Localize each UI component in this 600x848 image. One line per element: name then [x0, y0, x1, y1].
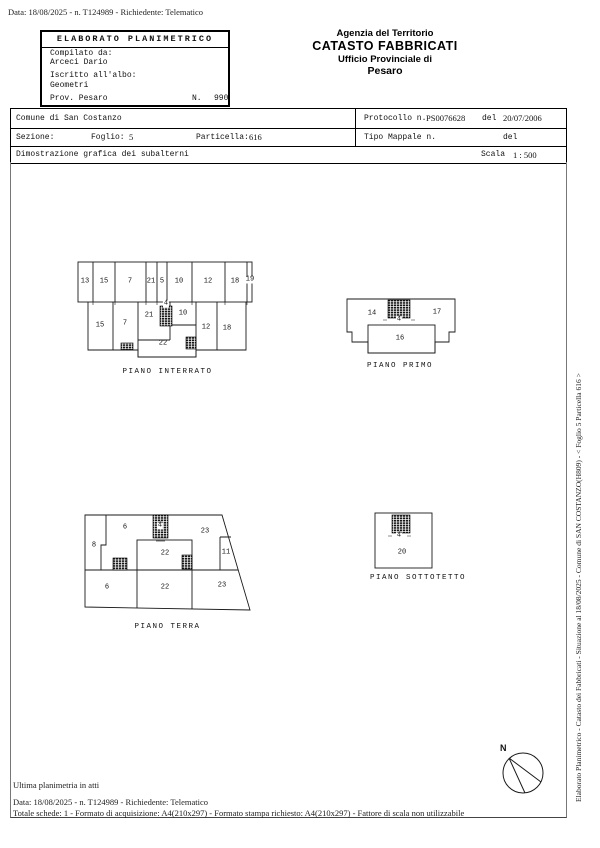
room-number: 6	[105, 585, 109, 592]
room-number: 20	[398, 550, 406, 557]
scala-value: 1 : 500	[513, 147, 537, 163]
protocollo-label: Protocollo n.	[364, 109, 426, 128]
room-number: 16	[396, 336, 404, 343]
room-number: 19	[245, 277, 255, 284]
tipo-mappale-label: Tipo Mappale n.	[364, 129, 436, 146]
floor-plan-interrato-drawing	[75, 258, 260, 380]
prov-label: Prov. Pesaro	[50, 94, 108, 103]
room-number: 6	[123, 525, 127, 532]
protocollo-del-value: 20/07/2006	[503, 109, 542, 128]
room-number: 12	[204, 279, 212, 286]
room-number: 8	[92, 543, 96, 550]
protocollo-value: PS0076628	[426, 109, 465, 128]
room-number: 18	[223, 326, 231, 333]
info-row-comune: Comune di San Costanzo Protocollo n. PS0…	[11, 109, 566, 128]
room-number: 7	[123, 321, 127, 328]
room-number: 4	[396, 533, 402, 540]
protocollo-cell: Protocollo n. PS0076628 del 20/07/2006	[356, 109, 566, 128]
agency-line1: Agenzia del Territorio	[300, 28, 470, 39]
floor-plan-primo: 14 4 17 16 PIANO PRIMO	[340, 295, 460, 380]
room-number: 4	[157, 523, 163, 530]
agency-line2: CATASTO FABBRICATI	[300, 39, 470, 54]
plan-caption-sottotetto: PIANO SOTTOTETTO	[370, 574, 450, 582]
comune-cell: Comune di San Costanzo	[11, 109, 356, 128]
room-number: 5	[160, 279, 164, 286]
room-number: 11	[222, 550, 230, 557]
foglio-value: 5	[129, 129, 133, 146]
room-number: 23	[218, 583, 226, 590]
ultima-planimetria-line: Ultima planimetria in atti	[13, 780, 99, 790]
room-number: 14	[368, 311, 376, 318]
room-number: 21	[145, 313, 153, 320]
room-number: 4	[396, 317, 402, 324]
room-number: 18	[231, 279, 239, 286]
tipo-mappale-del-label: del	[503, 129, 517, 146]
dimostrazione-label: Dimostrazione grafica dei subalterni	[16, 147, 189, 163]
room-number: 17	[433, 310, 441, 317]
floor-plan-terra-drawing	[80, 510, 255, 635]
n-value: 990	[214, 94, 228, 103]
cadastral-document-page: { "header": { "top_margin_line": "Data: …	[0, 0, 600, 848]
scala-label: Scala	[481, 147, 505, 163]
sezione-cell: Sezione: Foglio: 5 Particella: 616	[11, 129, 356, 146]
n-label: N.	[192, 94, 202, 103]
floor-plan-interrato: 13 15 7 21 5 10 12 18 19 15 7 21 4 10 22…	[75, 258, 260, 380]
room-number: 13	[81, 279, 89, 286]
room-number: 22	[161, 585, 169, 592]
room-number: 7	[128, 279, 132, 286]
plan-caption-interrato: PIANO INTERRATO	[75, 368, 260, 376]
footer-totale-line: Totale schede: 1 - Formato di acquisizio…	[13, 808, 464, 818]
compilato-label: Compilato da:	[50, 49, 112, 58]
elaborato-planimetrico-box: ELABORATO PLANIMETRICO Compilato da: Arc…	[40, 30, 230, 107]
agency-header: Agenzia del Territorio CATASTO FABBRICAT…	[300, 28, 470, 77]
iscritto-label: Iscritto all'albo:	[50, 71, 136, 80]
plan-caption-terra: PIANO TERRA	[80, 623, 255, 631]
sezione-label: Sezione:	[16, 129, 54, 146]
particella-label: Particella:	[196, 129, 249, 146]
foglio-label: Foglio:	[91, 129, 125, 146]
room-number: 10	[179, 311, 187, 318]
agency-line4: Pesaro	[300, 65, 470, 77]
north-label: N	[500, 743, 507, 753]
info-row-dimostrazione: Dimostrazione grafica dei subalterni Sca…	[11, 146, 566, 163]
info-row-sezione: Sezione: Foglio: 5 Particella: 616 Tipo …	[11, 128, 566, 146]
compass-icon: N	[495, 740, 550, 800]
room-number: 4	[163, 301, 169, 308]
room-number: 22	[161, 551, 169, 558]
compilato-value: Arceci Dario	[50, 58, 108, 67]
iscritto-value: Geometri	[50, 81, 88, 90]
footer-data-line: Data: 18/08/2025 - n. T124989 - Richiede…	[13, 797, 208, 807]
room-number: 23	[201, 529, 209, 536]
room-number: 22	[159, 341, 167, 348]
room-number: 15	[96, 323, 104, 330]
elaborato-box-title: ELABORATO PLANIMETRICO	[42, 32, 228, 48]
protocollo-del-label: del	[482, 109, 496, 128]
tipo-mappale-cell: Tipo Mappale n. del	[356, 129, 566, 146]
info-table: Comune di San Costanzo Protocollo n. PS0…	[10, 108, 567, 164]
plan-caption-primo: PIANO PRIMO	[340, 362, 460, 370]
floor-plan-sottotetto: 4 20 PIANO SOTTOTETTO	[370, 508, 450, 588]
floor-plan-terra: 6 8 4 23 11 22 6 22 23 PIANO TERRA	[80, 510, 255, 635]
room-number: 12	[202, 325, 210, 332]
room-number: 15	[100, 279, 108, 286]
particella-value: 616	[249, 129, 262, 146]
sidebar-vertical-caption: Elaborato Planimetrico - Catasto dei Fab…	[574, 310, 587, 802]
room-number: 10	[175, 279, 183, 286]
top-margin-data-line: Data: 18/08/2025 - n. T124989 - Richiede…	[8, 7, 203, 17]
room-number: 21	[147, 279, 155, 286]
agency-line3: Ufficio Provinciale di	[300, 54, 470, 65]
